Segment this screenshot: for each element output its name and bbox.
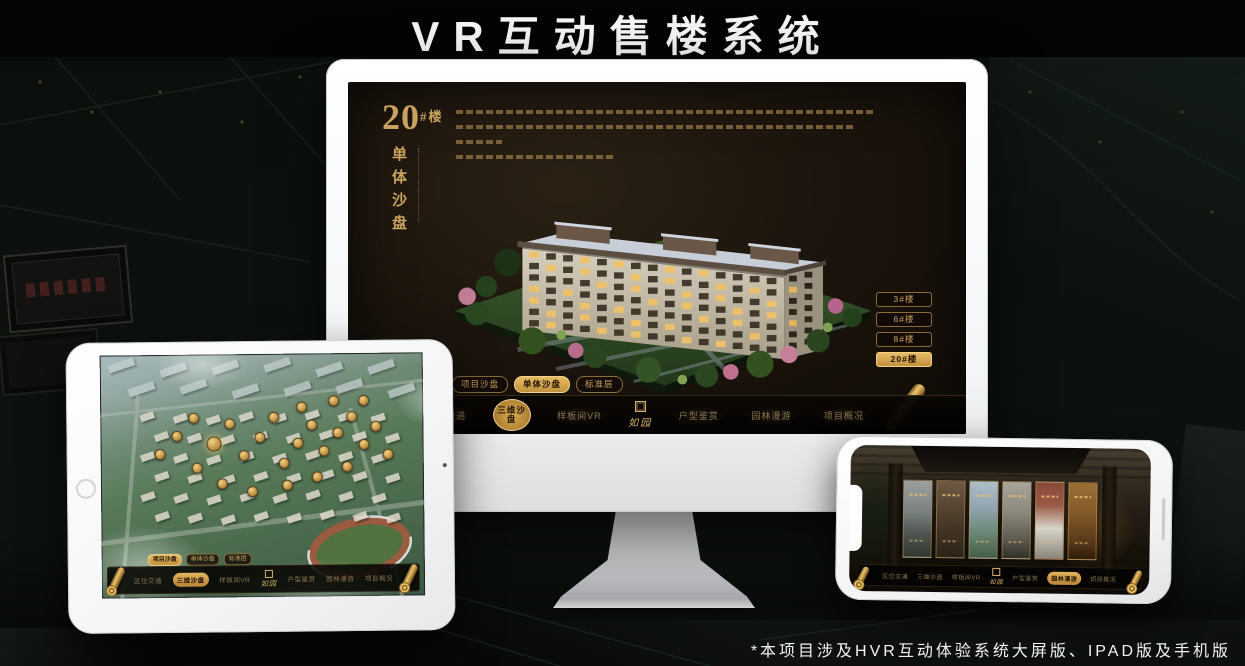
floor-button[interactable]: 3#楼 [876, 292, 932, 307]
promo-canvas: VR互动售楼系统 20#楼 单体沙盘 [0, 0, 1245, 666]
tablet-view-tabs: 项目沙盘 单体沙盘 标准层 [148, 553, 252, 566]
pergola-roof [911, 446, 1091, 475]
background-strip-bottom-left [0, 628, 150, 666]
tab-single-sandtable[interactable]: 单体沙盘 [186, 553, 220, 565]
brand-seal-icon [265, 569, 273, 577]
brand-logo: 如园 [261, 569, 277, 588]
menu-item-garden-roam[interactable]: 园林漫游 [1047, 571, 1081, 584]
menu-item-3d-sandtable[interactable]: 三维沙盘 [493, 399, 531, 431]
scene-card[interactable] [902, 480, 932, 558]
building-marker[interactable] [359, 439, 370, 450]
headline-divider [418, 148, 419, 222]
tab-project-sandtable[interactable]: 项目沙盘 [452, 376, 508, 393]
building-marker[interactable] [358, 395, 369, 406]
menu-item-unit-appreciation[interactable]: 户型鉴赏 [673, 405, 725, 426]
floor-button[interactable]: 6#楼 [876, 312, 932, 327]
scene-card[interactable] [968, 481, 998, 559]
phone-screen: 区位交通 三维沙盘 样板间VR 如园 户型鉴赏 园林漫游 项目概况 [849, 445, 1151, 595]
building-marker[interactable] [188, 413, 199, 424]
footnote: *本项目涉及HVR互动体验系统大屏版、IPAD版及手机版 [751, 637, 1231, 661]
menu-item-showroom-vr[interactable]: 样板间VR [219, 574, 250, 584]
building-marker[interactable] [346, 411, 357, 422]
scene-card-gallery [902, 480, 1097, 561]
menu-item-showroom-vr[interactable]: 样板间VR [952, 572, 981, 581]
phone-menu-bar: 区位交通 三维沙盘 样板间VR 如园 户型鉴赏 园林漫游 项目概况 [857, 564, 1141, 590]
monitor-stand [553, 512, 755, 608]
scene-card[interactable] [935, 480, 965, 558]
building-marker[interactable] [370, 421, 381, 432]
menu-item-location-traffic[interactable]: 区位交通 [134, 575, 162, 585]
building-marker[interactable] [192, 463, 203, 474]
building-marker[interactable] [171, 431, 182, 442]
floor-button-active[interactable]: 20#楼 [876, 352, 932, 367]
page-title: VR互动售楼系统 [0, 3, 1245, 64]
background-certificate-plaque [3, 245, 133, 334]
phone-device: 区位交通 三维沙盘 样板间VR 如园 户型鉴赏 园林漫游 项目概况 [835, 436, 1173, 605]
tablet-camera-icon [443, 463, 447, 467]
building-marker[interactable] [268, 412, 279, 423]
view-tabs: 项目沙盘 单体沙盘 标准层 [452, 376, 623, 393]
building-marker[interactable] [279, 458, 290, 469]
menu-item-location-traffic[interactable]: 区位交通 [882, 571, 908, 580]
phone-notch [849, 485, 863, 551]
floor-selector: 3#楼 6#楼 8#楼 20#楼 [876, 292, 932, 367]
menu-item-3d-sandtable[interactable]: 三维沙盘 [173, 573, 209, 587]
building-marker[interactable] [155, 449, 166, 460]
brand-seal-icon [993, 568, 1001, 576]
scene-card[interactable] [1067, 482, 1097, 560]
menu-item-unit-appreciation[interactable]: 户型鉴赏 [288, 573, 316, 583]
tab-project-sandtable[interactable]: 项目沙盘 [148, 554, 182, 566]
tab-standard-floor[interactable]: 标准层 [224, 553, 252, 565]
building-marker[interactable] [383, 449, 394, 460]
building-marker[interactable] [296, 402, 307, 413]
menu-item-showroom-vr[interactable]: 样板间VR [551, 405, 608, 426]
tablet-home-button[interactable] [76, 478, 96, 498]
building-marker[interactable] [206, 436, 221, 451]
background-photo-right [989, 57, 1245, 442]
scene-card[interactable] [1034, 481, 1064, 559]
tablet-device: 项目沙盘 单体沙盘 标准层 区位交通 三维沙盘 样板间VR 如园 户型鉴赏 园林… [65, 339, 455, 634]
brand-logo: 如园 [989, 568, 1003, 586]
building-marker[interactable] [282, 480, 293, 491]
menu-item-garden-roam[interactable]: 园林漫游 [326, 573, 354, 583]
building-marker[interactable] [332, 427, 343, 438]
phone-speaker-slot [1162, 498, 1166, 540]
building-model-3d[interactable] [440, 150, 886, 396]
block-headline-vertical: 单体沙盘 [388, 146, 409, 238]
building-marker[interactable] [319, 445, 330, 456]
building-marker[interactable] [328, 395, 339, 406]
menu-item-3d-sandtable[interactable]: 三维沙盘 [917, 571, 943, 580]
building-marker[interactable] [342, 461, 353, 472]
menu-item-project-overview[interactable]: 项目概况 [818, 405, 870, 426]
tab-standard-floor[interactable]: 标准层 [576, 376, 623, 393]
menu-item-project-overview[interactable]: 项目概况 [365, 573, 393, 583]
building-marker[interactable] [254, 432, 265, 443]
menu-item-unit-appreciation[interactable]: 户型鉴赏 [1012, 573, 1038, 582]
brand-logo: 如园 [628, 401, 652, 429]
building-marker[interactable] [306, 419, 317, 430]
building-marker[interactable] [217, 478, 228, 489]
building-marker[interactable] [224, 418, 235, 429]
menu-item-garden-roam[interactable]: 园林漫游 [745, 405, 797, 426]
menu-item-project-overview[interactable]: 项目概况 [1090, 574, 1116, 583]
tab-single-sandtable[interactable]: 单体沙盘 [514, 376, 570, 393]
brand-seal-icon [635, 401, 646, 412]
building-marker[interactable] [247, 486, 258, 497]
scene-card[interactable] [1001, 481, 1031, 559]
building-marker[interactable] [312, 471, 323, 482]
floor-button[interactable]: 8#楼 [876, 332, 932, 347]
block-headline: 20#楼 [382, 96, 444, 138]
building-marker[interactable] [292, 438, 303, 449]
building-marker[interactable] [239, 450, 250, 461]
tablet-screen: 项目沙盘 单体沙盘 标准层 区位交通 三维沙盘 样板间VR 如园 户型鉴赏 园林… [100, 352, 426, 598]
tablet-menu-bar: 区位交通 三维沙盘 样板间VR 如园 户型鉴赏 园林漫游 项目概况 [107, 563, 420, 594]
background-photo-tile [1165, 424, 1245, 608]
